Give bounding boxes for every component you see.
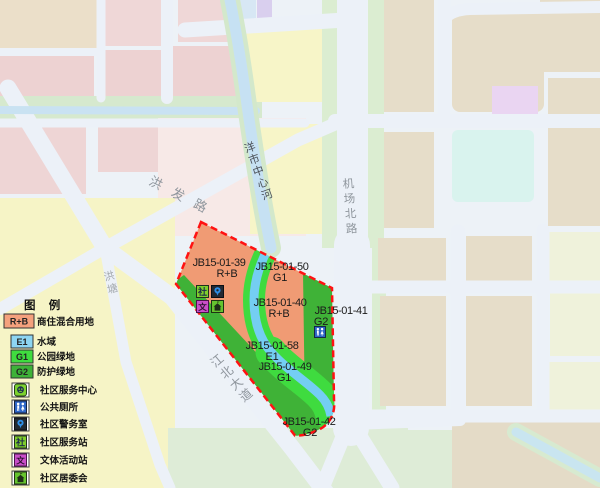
legend-zone-g1: G1 公园绿地 (11, 350, 76, 363)
svg-text:公共厕所: 公共厕所 (40, 402, 79, 414)
svg-text:文体活动站: 文体活动站 (39, 455, 88, 467)
svg-text:E1: E1 (16, 337, 27, 347)
legend-zone-g2: G2 防护绿地 (11, 365, 76, 378)
svg-text:社区服务站: 社区服务站 (39, 437, 88, 449)
legend-facility-committee: 社区居委会 (12, 471, 88, 485)
legend-title: 图 例 (24, 298, 65, 312)
svg-text:水域: 水域 (37, 336, 57, 348)
legend-zone-rb: R+B 商住混合用地 (4, 314, 95, 328)
legend-facility-police: 社区警务室 (12, 417, 88, 431)
legend-facility-service-center: 社区服务中心 (12, 383, 98, 397)
legend-facility-service-station: 社区服务站 (12, 435, 88, 449)
legend-facility-toilet: 公共厕所 (12, 400, 79, 414)
svg-text:防护绿地: 防护绿地 (37, 366, 76, 378)
svg-text:R+B: R+B (10, 317, 29, 327)
planning-map: 社 文 (0, 0, 600, 488)
svg-text:G1: G1 (16, 352, 28, 362)
parcel-use-jb15-01-39: R+B (216, 268, 237, 280)
parcel-use-jb15-01-42: G2 (303, 427, 317, 439)
svg-text:公园绿地: 公园绿地 (37, 351, 76, 363)
svg-text:社区警务室: 社区警务室 (39, 419, 88, 431)
svg-text:商住混合用地: 商住混合用地 (37, 316, 95, 328)
svg-text:社区服务中心: 社区服务中心 (39, 385, 98, 397)
legend-facility-culture: 文体活动站 (12, 453, 88, 467)
parcel-use-jb15-01-50: G1 (273, 272, 287, 284)
parcel-use-jb15-01-40: R+B (268, 308, 289, 320)
parcel-use-jb15-01-49: G1 (277, 372, 291, 384)
svg-text:社区居委会: 社区居委会 (39, 473, 88, 485)
legend: 图 例 R+B 商住混合用地 E1 水域 G1 公园绿地 G2 防护绿地 社区服… (4, 298, 98, 485)
svg-text:G2: G2 (16, 367, 28, 377)
